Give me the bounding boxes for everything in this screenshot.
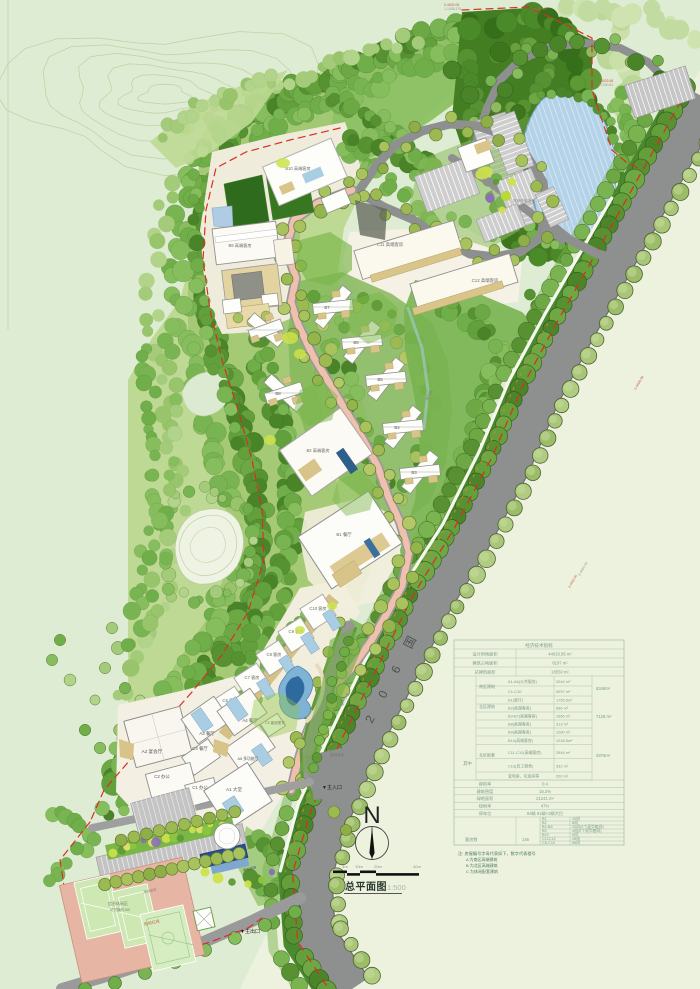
svg-text:B6: B6 — [353, 340, 359, 345]
svg-text:1:500: 1:500 — [387, 883, 406, 892]
svg-text:8346m²: 8346m² — [596, 686, 611, 691]
svg-text:10m: 10m — [355, 864, 363, 869]
svg-text:A1 大堂: A1 大堂 — [226, 786, 242, 793]
svg-text:2876m²: 2876m² — [596, 753, 611, 758]
svg-text:47%: 47% — [541, 804, 550, 809]
svg-text:榕树景象: 榕树景象 — [330, 752, 345, 757]
svg-text:C4 餐厅: C4 餐厅 — [192, 745, 208, 752]
svg-text:1280 m²: 1280 m² — [556, 729, 571, 734]
svg-text:7128 m²: 7128 m² — [596, 714, 612, 719]
svg-text:1228.5m²: 1228.5m² — [556, 738, 573, 743]
svg-text:8197 m²: 8197 m² — [552, 661, 568, 666]
svg-text:变电房、垃圾房等: 变电房、垃圾房等 — [508, 773, 539, 778]
svg-text:56间: 56间 — [572, 840, 580, 845]
svg-text:21241 m²: 21241 m² — [536, 796, 554, 801]
svg-text:2544 m²: 2544 m² — [556, 750, 571, 755]
svg-text:B1(餐厅): B1(餐厅) — [508, 697, 524, 702]
svg-text:停车位: 停车位 — [479, 810, 492, 817]
svg-text:B3-B7(高端客房): B3-B7(高端客房) — [508, 713, 538, 718]
svg-text:B2(高端客房): B2(高端客房) — [508, 705, 532, 710]
svg-text:B10 高端客房: B10 高端客房 — [285, 165, 310, 172]
svg-text:B10(高端客房): B10(高端客房) — [508, 738, 534, 743]
svg-text:经济技术指标: 经济技术指标 — [525, 642, 553, 649]
svg-text:C6-C10: C6-C10 — [542, 841, 555, 845]
svg-text:313 m²: 313 m² — [556, 721, 569, 726]
svg-text:B8: B8 — [275, 391, 281, 396]
svg-text:896 m²: 896 m² — [556, 705, 569, 710]
svg-text:332 m²: 332 m² — [556, 764, 569, 769]
svg-text:A3 餐厅: A3 餐厅 — [199, 730, 215, 737]
svg-text:20m: 20m — [374, 864, 382, 869]
svg-text:C 为休闲配套建筑: C 为休闲配套建筑 — [466, 868, 498, 874]
svg-text:B3: B3 — [411, 470, 417, 475]
svg-text:C13(员工宿舍): C13(员工宿舍) — [508, 764, 534, 769]
svg-text:总平面图: 总平面图 — [345, 880, 387, 893]
svg-text:1-1038.176: 1-1038.176 — [444, 7, 461, 11]
svg-text:容积率: 容积率 — [479, 780, 492, 787]
svg-text:C10 客房: C10 客房 — [309, 605, 326, 612]
svg-text:C7 客房: C7 客房 — [245, 674, 260, 681]
svg-text:40m: 40m — [413, 864, 421, 869]
svg-text:北区建筑: 北区建筑 — [479, 703, 495, 709]
svg-text:0.4: 0.4 — [542, 781, 548, 786]
svg-text:货用停车场: 货用停车场 — [513, 198, 531, 203]
svg-text:A1-A6(公共服务): A1-A6(公共服务) — [508, 679, 538, 684]
svg-text:B2 高端客房: B2 高端客房 — [306, 447, 329, 454]
svg-text:1665 m²: 1665 m² — [556, 713, 571, 718]
svg-text:B1 餐厅: B1 餐厅 — [336, 531, 352, 538]
svg-text:1-1330.81: 1-1330.81 — [598, 83, 613, 87]
svg-text:客房数: 客房数 — [465, 836, 478, 843]
svg-text:93辆 91辆+2辆大巴: 93辆 91辆+2辆大巴 — [527, 810, 563, 817]
svg-text:5097 m²: 5097 m² — [556, 689, 571, 694]
svg-text:C11 高端客房: C11 高端客房 — [377, 241, 404, 248]
svg-text:南区建筑: 南区建筑 — [479, 683, 495, 689]
svg-text:绿地面积: 绿地面积 — [477, 795, 494, 802]
svg-text:146: 146 — [522, 837, 530, 842]
svg-text:设计用地面积: 设计用地面积 — [472, 651, 497, 658]
svg-text:▼主入口: ▼主入口 — [322, 784, 342, 791]
svg-text:18550 m²: 18550 m² — [551, 670, 569, 675]
svg-text:44919.95 m²: 44919.95 m² — [548, 652, 572, 657]
svg-text:可供娱约100: 可供娱约100 — [110, 907, 130, 912]
svg-text:注: 房屋编号字母代表如下，数字代表楼号: 注: 房屋编号字母代表如下，数字代表楼号 — [458, 850, 536, 857]
svg-text:B4: B4 — [394, 425, 400, 430]
svg-text:其中: 其中 — [463, 760, 472, 767]
svg-text:信息休闲区: 信息休闲区 — [108, 900, 128, 906]
svg-text:▼主出口: ▼主出口 — [240, 928, 260, 935]
svg-text:A2 宴会厅: A2 宴会厅 — [142, 748, 163, 755]
svg-text:北区配套: 北区配套 — [479, 752, 495, 758]
svg-text:C11-C12(高端客房): C11-C12(高端客房) — [508, 750, 542, 755]
svg-text:A6 多功能厅: A6 多功能厅 — [238, 756, 259, 761]
svg-text:18.2%: 18.2% — [539, 789, 551, 794]
svg-text:B7: B7 — [324, 305, 330, 310]
svg-text:B9 高端客房: B9 高端客房 — [228, 242, 251, 249]
svg-text:C8 客房: C8 客房 — [267, 651, 282, 658]
svg-text:建筑占地面积: 建筑占地面积 — [472, 660, 497, 667]
svg-text:B 为北区高端建筑: B 为北区高端建筑 — [466, 862, 498, 868]
svg-text:C2 办公: C2 办公 — [154, 773, 170, 780]
svg-text:绿地率: 绿地率 — [479, 803, 492, 810]
svg-text:3244 m²: 3244 m² — [556, 679, 571, 684]
svg-text:200 m²: 200 m² — [556, 773, 569, 778]
svg-text:B9(高端客房): B9(高端客房) — [508, 729, 532, 734]
svg-text:总建筑面积: 总建筑面积 — [475, 669, 496, 676]
svg-text:B5: B5 — [377, 377, 383, 382]
svg-text:1755.5m²: 1755.5m² — [556, 697, 573, 702]
svg-text:B8(高端客房): B8(高端客房) — [508, 721, 532, 726]
svg-text:A 为南区高端建筑: A 为南区高端建筑 — [466, 856, 498, 862]
svg-text:建筑密度: 建筑密度 — [477, 788, 495, 795]
svg-text:C1-C10: C1-C10 — [508, 689, 522, 694]
svg-text:0-4628.040: 0-4628.040 — [530, 7, 547, 11]
